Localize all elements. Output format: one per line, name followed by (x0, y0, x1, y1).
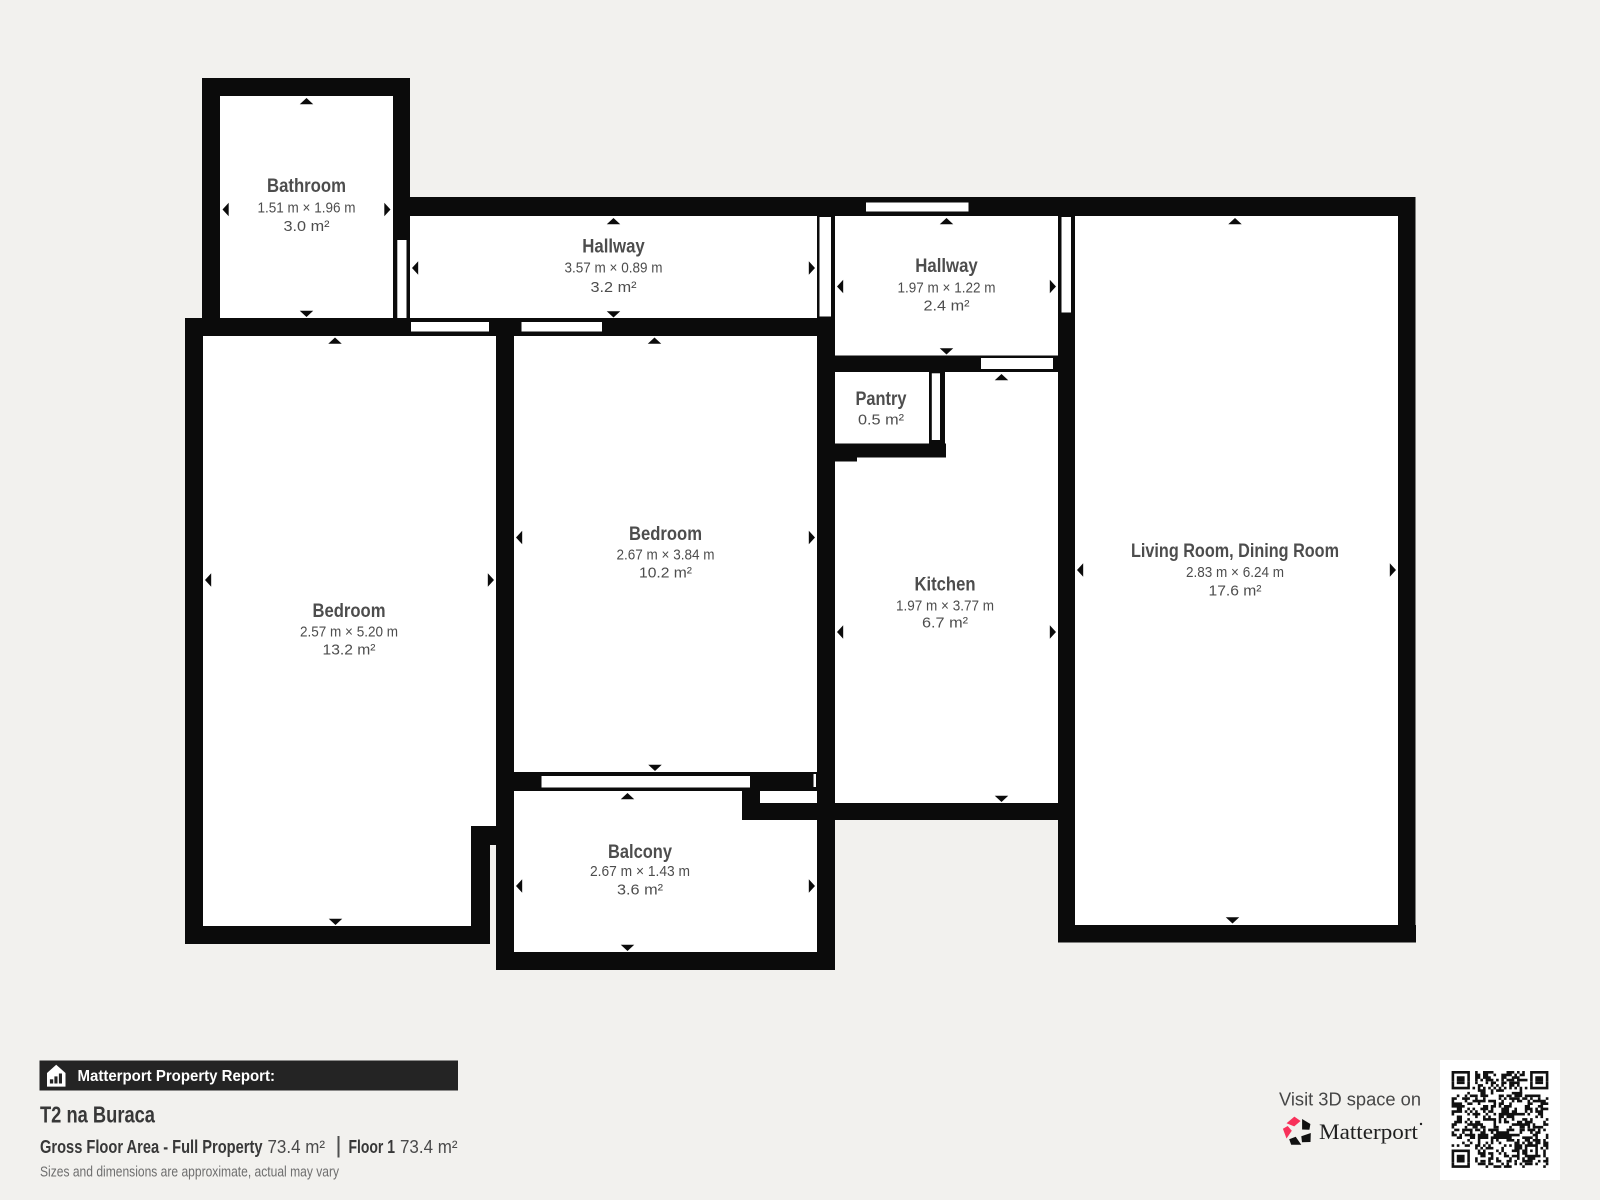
svg-text:Gross Floor Area - Full Proper: Gross Floor Area - Full Property (40, 1137, 263, 1157)
svg-text:Hallway: Hallway (582, 236, 645, 258)
svg-text:1.97 m × 3.77 m: 1.97 m × 3.77 m (896, 598, 994, 615)
svg-text:0.5 m²: 0.5 m² (858, 412, 904, 429)
svg-text:Living Room, Dining Room: Living Room, Dining Room (1131, 540, 1339, 562)
svg-text:2.57 m × 5.20 m: 2.57 m × 5.20 m (300, 624, 398, 641)
svg-text:3.0 m²: 3.0 m² (284, 218, 330, 235)
svg-text:Visit 3D space on: Visit 3D space on (1279, 1090, 1421, 1110)
svg-text:Kitchen: Kitchen (915, 574, 976, 596)
svg-text:3.2 m²: 3.2 m² (591, 279, 637, 296)
svg-text:73.4 m²: 73.4 m² (268, 1137, 326, 1157)
svg-text:2.67 m × 1.43 m: 2.67 m × 1.43 m (590, 863, 690, 880)
svg-text:6.7 m²: 6.7 m² (922, 615, 968, 632)
svg-text:10.2 m²: 10.2 m² (639, 565, 692, 582)
svg-text:Matterport Property Report:: Matterport Property Report: (78, 1068, 276, 1085)
svg-text:3.6 m²: 3.6 m² (617, 882, 663, 899)
svg-text:Matterport: Matterport (1319, 1119, 1418, 1144)
svg-text:Hallway: Hallway (915, 255, 978, 277)
svg-text:13.2 m²: 13.2 m² (323, 642, 376, 659)
svg-text:T2 na Buraca: T2 na Buraca (40, 1102, 155, 1128)
svg-text:2.67 m × 3.84 m: 2.67 m × 3.84 m (617, 547, 715, 564)
svg-text:Pantry: Pantry (856, 388, 907, 410)
svg-text:2.83 m × 6.24 m: 2.83 m × 6.24 m (1186, 564, 1284, 581)
svg-text:Bedroom: Bedroom (313, 600, 386, 622)
svg-text:Bedroom: Bedroom (629, 523, 702, 545)
svg-text:73.4 m²: 73.4 m² (400, 1137, 458, 1157)
svg-text:Floor 1: Floor 1 (349, 1137, 396, 1157)
svg-text:1.97 m × 1.22 m: 1.97 m × 1.22 m (898, 280, 996, 297)
svg-text:Balcony: Balcony (608, 841, 672, 863)
svg-text:1.51 m × 1.96 m: 1.51 m × 1.96 m (258, 200, 356, 217)
svg-text:Bathroom: Bathroom (267, 175, 346, 197)
svg-text:2.4 m²: 2.4 m² (924, 298, 970, 315)
svg-text:3.57 m × 0.89 m: 3.57 m × 0.89 m (565, 260, 663, 277)
svg-text:Sizes and dimensions are appro: Sizes and dimensions are approximate, ac… (40, 1165, 340, 1181)
svg-text:17.6 m²: 17.6 m² (1209, 583, 1262, 600)
